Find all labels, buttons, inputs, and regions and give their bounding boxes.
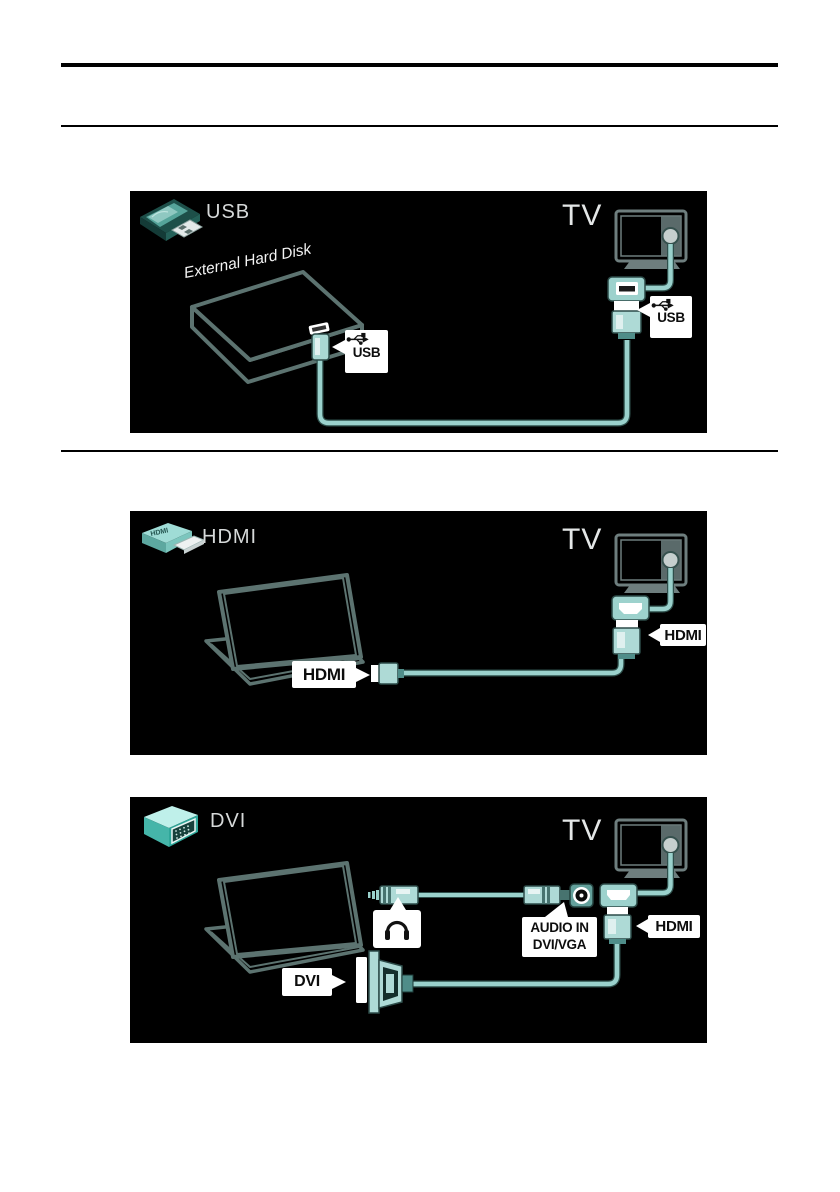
tv-label: TV xyxy=(562,199,602,233)
laptop-hdmi-plug xyxy=(371,663,404,684)
header-rule-thick xyxy=(61,63,778,67)
usb-connection-diagram: USB External Hard Disk TV USB xyxy=(130,191,707,433)
panel-title-usb: USB xyxy=(206,201,250,224)
hdmi-cable xyxy=(404,654,621,673)
external-hard-disk xyxy=(192,272,362,382)
tv-hdmi-label: HDMI xyxy=(660,624,706,646)
tv-hdmi-plug xyxy=(604,907,631,944)
laptop-dvi-label: DVI xyxy=(282,968,332,996)
tv-label: TV xyxy=(562,814,602,848)
tv-hdmi-plug xyxy=(613,620,640,659)
tv-icon xyxy=(616,820,686,878)
audio-jack-plug-left xyxy=(368,886,418,904)
usb-flash-drive-icon xyxy=(140,199,202,241)
tv-label: TV xyxy=(562,523,602,557)
tv-usb-label: USB xyxy=(650,298,692,336)
audio-in-label: AUDIO IN DVI/VGA xyxy=(522,917,597,957)
audio-jack-plug-right xyxy=(524,886,570,904)
panel-title-dvi: DVI xyxy=(210,810,246,833)
hdmi-connection-diagram: HDMI xyxy=(130,511,707,755)
tv-icon xyxy=(616,535,686,593)
laptop-hdmi-label: HDMI xyxy=(292,661,356,688)
tv-hdmi-socket xyxy=(600,884,637,907)
tv-hdmi-socket xyxy=(612,596,649,620)
manual-page: USB External Hard Disk TV USB xyxy=(0,0,840,1192)
header-rule-thin xyxy=(61,125,778,127)
dvi-connector-icon xyxy=(144,806,198,847)
usb-symbol-icon xyxy=(650,298,677,311)
tv-usb-socket xyxy=(608,277,645,301)
laptop xyxy=(206,863,363,972)
panel-title-hdmi: HDMI xyxy=(202,526,257,549)
hdmi-plug-icon: HDMI xyxy=(142,523,204,554)
tv-icon xyxy=(616,211,686,269)
audio-in-socket xyxy=(570,884,593,907)
disk-usb-label: USB xyxy=(345,332,388,372)
dvi-connection-diagram: DVI TV AUDIO IN DVI/VGA DVI HDMI xyxy=(130,797,707,1043)
tv-usb-plug xyxy=(612,301,641,339)
disk-usb-plug xyxy=(312,334,329,360)
usb-symbol-icon xyxy=(345,332,372,345)
section-divider-rule xyxy=(61,450,778,452)
laptop-dvi-connector xyxy=(356,951,413,1013)
tv-hdmi-label: HDMI xyxy=(648,915,700,938)
